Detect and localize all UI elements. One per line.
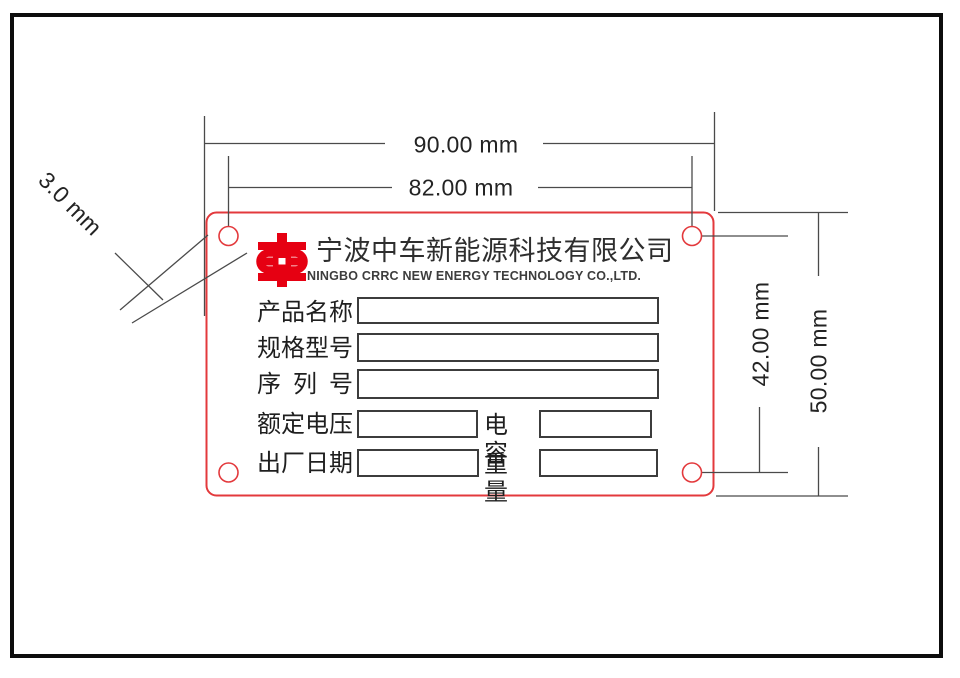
- company-name-en: NINGBO CRRC NEW ENERGY TECHNOLOGY CO.,LT…: [307, 269, 641, 283]
- label-product-name: 产品名称: [257, 299, 353, 327]
- field-box-serial-no: [357, 369, 659, 399]
- field-box-product-name: [357, 297, 659, 324]
- label-spec-model: 规格型号: [257, 335, 353, 363]
- dim-outer-width: 90.00 mm: [414, 132, 519, 159]
- hole-top-left: [219, 227, 238, 246]
- hole-bottom-right: [683, 463, 702, 482]
- label-weight: 重量: [484, 451, 530, 507]
- company-name-cn: 宁波中车新能源科技有限公司: [316, 235, 674, 267]
- nameplate-drawing-canvas: { "dimensions": { "outer_width": "90.00 …: [0, 0, 960, 678]
- hole-top-right: [683, 227, 702, 246]
- hole-bottom-left: [219, 463, 238, 482]
- dim-outer-height: 50.00 mm: [806, 309, 833, 414]
- field-box-spec-model: [357, 333, 659, 362]
- label-serial-no: 序 列 号: [257, 371, 353, 399]
- field-box-manufacture-date: [357, 449, 479, 477]
- field-box-capacitance: [539, 410, 652, 438]
- dim-hole-span-height: 42.00 mm: [748, 282, 775, 387]
- label-rated-voltage: 额定电压: [257, 411, 353, 439]
- label-manufacture-date: 出厂日期: [257, 450, 353, 478]
- field-box-weight: [539, 449, 658, 477]
- dim-hole-span-width: 82.00 mm: [409, 175, 514, 202]
- field-box-rated-voltage: [357, 410, 478, 438]
- crrc-logo-icon: [256, 233, 308, 287]
- crrc-logo: [256, 233, 308, 287]
